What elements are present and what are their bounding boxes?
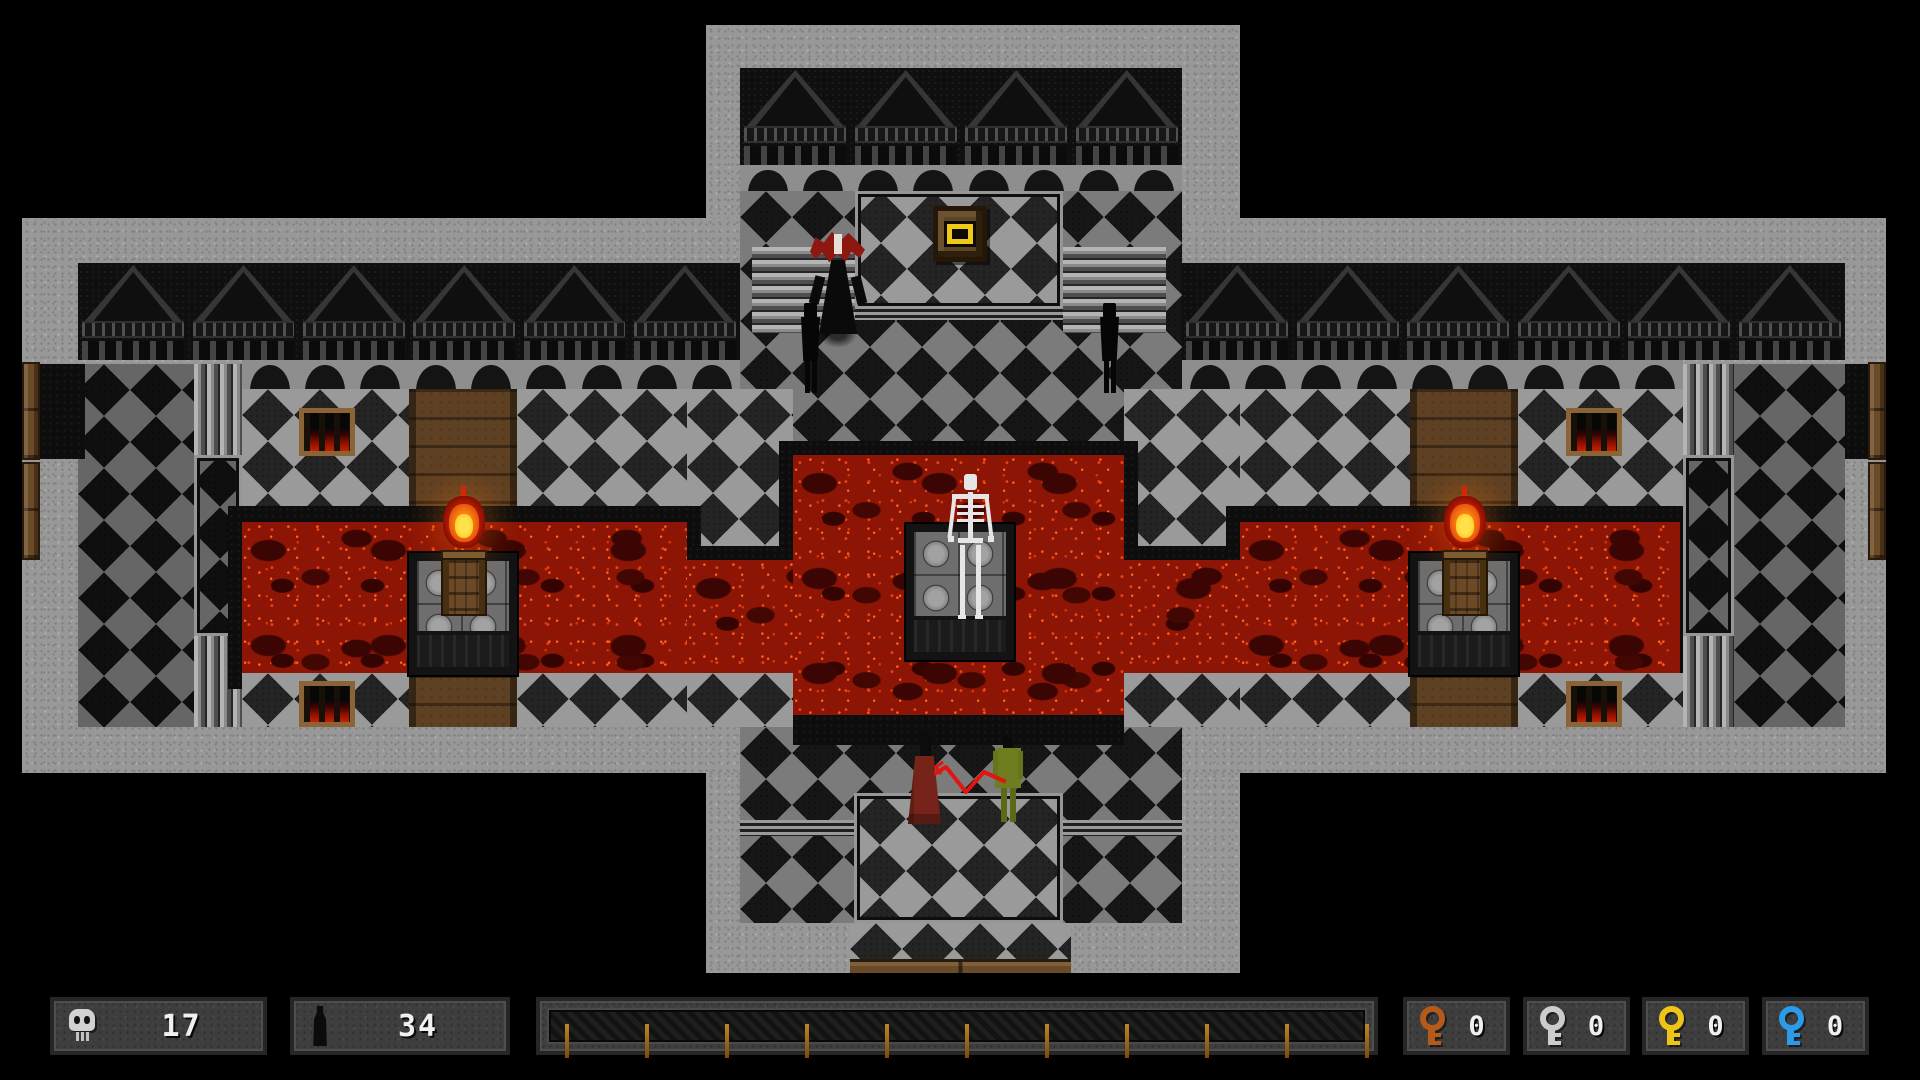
left-door-niche — [40, 364, 85, 459]
grate-bars — [304, 686, 350, 722]
gable-ornament — [1293, 263, 1404, 360]
gable-ornament — [299, 263, 409, 360]
progress-tick — [1365, 1024, 1369, 1058]
fire-flame — [1456, 514, 1474, 538]
shadow-leg — [1104, 361, 1109, 393]
right-arches — [1182, 360, 1683, 389]
platform-front — [914, 620, 1006, 652]
right-shore-bottom-a — [1240, 673, 1410, 727]
skeleton-foot — [975, 615, 983, 619]
progress-tick — [645, 1024, 649, 1058]
progress-tick — [805, 1024, 809, 1058]
bottom-passage — [854, 793, 1063, 923]
copper-key-icon — [1417, 1004, 1449, 1048]
progress-bar-panel — [536, 997, 1378, 1055]
skeleton-leg — [976, 545, 981, 615]
skeleton-arm — [984, 496, 993, 538]
skeleton — [946, 474, 994, 622]
arch-ornament — [519, 360, 574, 389]
gable-ornament — [1403, 263, 1514, 360]
pedestal — [933, 206, 987, 262]
shadow-head — [1103, 303, 1116, 318]
skull-count: 17 — [100, 1009, 263, 1044]
progress-tick — [885, 1024, 889, 1058]
right-brazier — [1442, 496, 1488, 616]
skeleton-rib — [957, 519, 984, 522]
brazier-barrel — [441, 558, 487, 616]
arch-ornament — [961, 165, 1016, 191]
gold-ring-item — [947, 224, 973, 244]
left-corridor-bottom — [409, 675, 517, 727]
center-shore-bottom-left — [687, 673, 793, 727]
progress-bar — [549, 1010, 1365, 1042]
left-arches — [242, 360, 740, 389]
skeleton-pelvis — [958, 538, 983, 543]
hud-bar: 17 34 0000 — [0, 973, 1920, 1080]
fire-flame — [455, 514, 473, 538]
silver-key-counter-panel: 0 — [1523, 997, 1630, 1055]
right-stair-column — [1683, 455, 1734, 636]
gold-key-counter-panel: 0 — [1642, 997, 1749, 1055]
skeleton-shoulders — [952, 494, 989, 499]
bottle-icon — [310, 1006, 330, 1046]
right-wall — [1182, 263, 1845, 360]
gable-ornament — [1182, 263, 1293, 360]
pool-south-shore — [793, 715, 1124, 745]
gable-ornament — [519, 263, 629, 360]
arch-ornament — [1127, 165, 1182, 191]
right-stairs-bottom — [1683, 636, 1734, 727]
left-upper-floor — [78, 364, 194, 727]
shadow-figure-right — [1096, 303, 1123, 393]
arch-ornament — [851, 165, 906, 191]
left-brazier — [441, 496, 487, 616]
progress-tick — [725, 1024, 729, 1058]
gable-ornament — [851, 68, 962, 165]
grate-top-left — [299, 408, 355, 456]
vampire-arm — [809, 275, 825, 305]
right-upper-floor — [1734, 364, 1845, 727]
shadow-leg — [1111, 361, 1116, 393]
arch-ornament — [1516, 360, 1572, 389]
progress-tick — [1205, 1024, 1209, 1058]
arch-ornament — [408, 360, 463, 389]
blue-key-counter-panel: 0 — [1762, 997, 1869, 1055]
silver-key-count: 0 — [1569, 1011, 1626, 1042]
grate-bars — [1571, 413, 1617, 451]
gable-ornament — [409, 263, 519, 360]
progress-tick — [1125, 1024, 1129, 1058]
gable-ornament — [630, 263, 740, 360]
right-shore-a — [1240, 389, 1410, 522]
arch-ornament — [906, 165, 961, 191]
progress-tick — [1285, 1024, 1289, 1058]
green-figure-arm — [1018, 751, 1023, 779]
skeleton-foot — [958, 615, 966, 619]
arch-ornament — [1627, 360, 1683, 389]
skeleton-hand — [948, 536, 954, 542]
vampire-arm — [851, 275, 867, 305]
gable-ornament — [1514, 263, 1625, 360]
bottom-ledge-left — [740, 820, 854, 836]
arch-ornament — [353, 360, 408, 389]
arch-ornament — [740, 165, 795, 191]
skeleton-rib — [957, 505, 984, 508]
top-wall — [740, 68, 1182, 165]
arch-ornament — [242, 360, 297, 389]
brazier-barrel — [1442, 558, 1488, 616]
arch-ornament — [1293, 360, 1349, 389]
shadow-leg — [812, 361, 817, 393]
left-stairs-top — [194, 364, 242, 455]
right-stairs-top — [1683, 364, 1734, 455]
bottle-counter-panel: 34 — [290, 997, 510, 1055]
grate-top-right — [1566, 408, 1622, 456]
arch-ornament — [574, 360, 629, 389]
gable-ornament — [740, 68, 851, 165]
grate-bottom-right — [1566, 681, 1622, 727]
skeleton-rib — [957, 512, 984, 515]
grate-bottom-left — [299, 681, 355, 727]
shadow-body — [1100, 317, 1119, 361]
grate-bars — [1571, 686, 1617, 722]
platform-front — [1418, 635, 1510, 667]
bottom-door — [850, 959, 1071, 973]
copper-key-count: 0 — [1449, 1011, 1506, 1042]
gable-ornament — [1735, 263, 1846, 360]
shadow-figure-left — [797, 303, 824, 393]
skeleton-head — [964, 474, 977, 490]
vampire-face — [834, 234, 842, 254]
arch-ornament — [1460, 360, 1516, 389]
game-screen: 17 34 0000 — [0, 0, 1920, 1080]
silver-key-icon — [1537, 1004, 1569, 1048]
blue-key-count: 0 — [1808, 1011, 1865, 1042]
gable-ornament — [78, 263, 188, 360]
skeleton-leg — [960, 545, 965, 615]
skeleton-spine — [968, 492, 973, 540]
center-shore-bottom-right — [1124, 673, 1240, 727]
shadow-leg — [805, 361, 810, 393]
gold-key-count: 0 — [1688, 1011, 1745, 1042]
bottom-ledge-right — [1063, 820, 1182, 836]
arch-ornament — [297, 360, 352, 389]
left-peninsula — [687, 389, 793, 560]
gable-ornament — [1072, 68, 1183, 165]
game-viewport[interactable] — [0, 0, 1920, 973]
arch-ornament — [795, 165, 850, 191]
right-door-upper — [1868, 362, 1886, 460]
skull-counter-panel: 17 — [50, 997, 267, 1055]
arch-ornament — [1572, 360, 1628, 389]
copper-key-counter-panel: 0 — [1403, 997, 1510, 1055]
whip-attack — [925, 752, 1015, 798]
platform-front — [417, 635, 509, 667]
arch-ornament — [1016, 165, 1071, 191]
skeleton-hand — [988, 536, 994, 542]
arch-ornament — [1182, 360, 1238, 389]
whip — [925, 752, 1015, 798]
bottom-passage-lower — [850, 923, 1071, 959]
skull-icon — [66, 1007, 100, 1045]
arch-ornament — [629, 360, 684, 389]
arch-ornament — [1072, 165, 1127, 191]
gable-ornament — [961, 68, 1072, 165]
left-door-upper — [22, 362, 40, 460]
right-door-lower — [1868, 462, 1886, 560]
vampire-robe — [819, 260, 857, 334]
arch-ornament — [463, 360, 518, 389]
left-wall — [78, 263, 740, 360]
arch-ornament — [1349, 360, 1405, 389]
gable-ornament — [1624, 263, 1735, 360]
progress-tick — [1045, 1024, 1049, 1058]
top-arches — [740, 165, 1182, 191]
arch-ornament — [1238, 360, 1294, 389]
progress-tick — [565, 1024, 569, 1058]
progress-tick — [965, 1024, 969, 1058]
right-corridor-bottom — [1410, 675, 1518, 727]
left-shore-b — [517, 389, 687, 522]
skeleton-arm — [947, 496, 956, 538]
right-peninsula — [1124, 389, 1240, 560]
arch-ornament — [1405, 360, 1461, 389]
upper-platform-edge — [855, 306, 1063, 320]
gold-key-icon — [1656, 1004, 1688, 1048]
grate-bars — [304, 413, 350, 451]
left-shore-bottom-b — [517, 673, 687, 727]
left-door-lower — [22, 462, 40, 560]
blue-key-icon — [1776, 1004, 1808, 1048]
gable-ornament — [188, 263, 298, 360]
arch-ornament — [685, 360, 740, 389]
bottle-count: 34 — [330, 1009, 506, 1044]
shadow-head — [804, 303, 817, 318]
shadow-body — [801, 317, 820, 361]
